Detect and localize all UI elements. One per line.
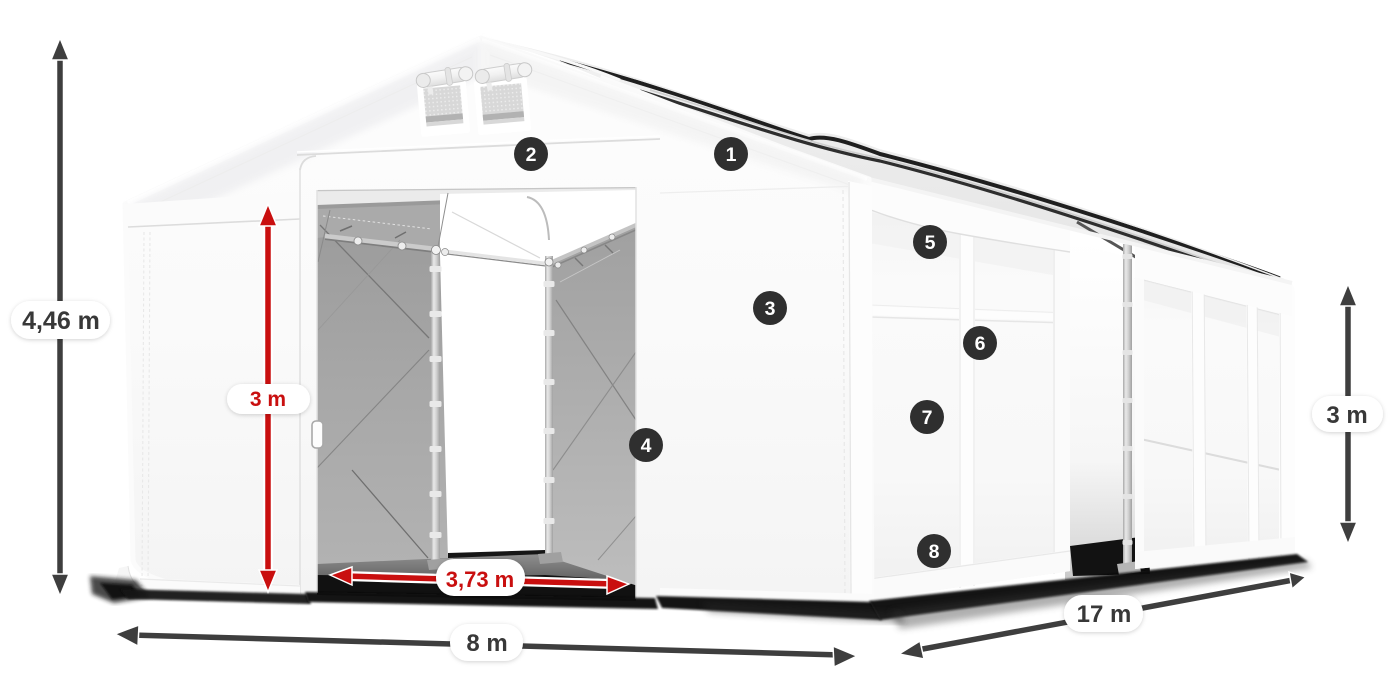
svg-text:3: 3 [765, 298, 776, 320]
svg-text:17 m: 17 m [1077, 601, 1132, 628]
svg-text:3 m: 3 m [1326, 402, 1367, 429]
svg-text:3 m: 3 m [250, 388, 286, 411]
svg-text:6: 6 [975, 333, 986, 355]
svg-text:8 m: 8 m [466, 630, 507, 657]
svg-text:5: 5 [925, 232, 936, 254]
svg-text:3,73 m: 3,73 m [446, 567, 515, 592]
svg-text:1: 1 [726, 144, 737, 166]
svg-text:7: 7 [922, 407, 933, 429]
svg-text:4: 4 [641, 435, 652, 457]
svg-text:8: 8 [929, 541, 940, 563]
svg-text:4,46 m: 4,46 m [22, 307, 100, 335]
svg-text:2: 2 [526, 144, 537, 166]
